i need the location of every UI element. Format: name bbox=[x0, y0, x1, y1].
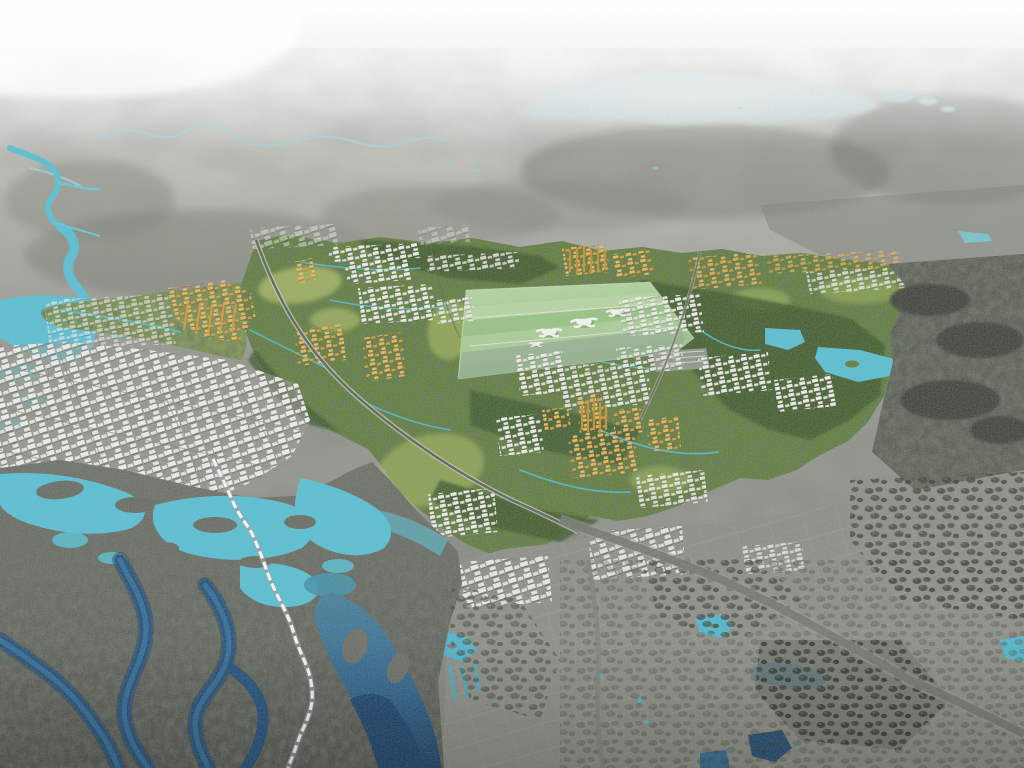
bottom-vignette bbox=[0, 640, 1024, 768]
aerial-masterplan-rendering bbox=[0, 0, 1024, 768]
masterplan-canvas bbox=[0, 0, 1024, 768]
